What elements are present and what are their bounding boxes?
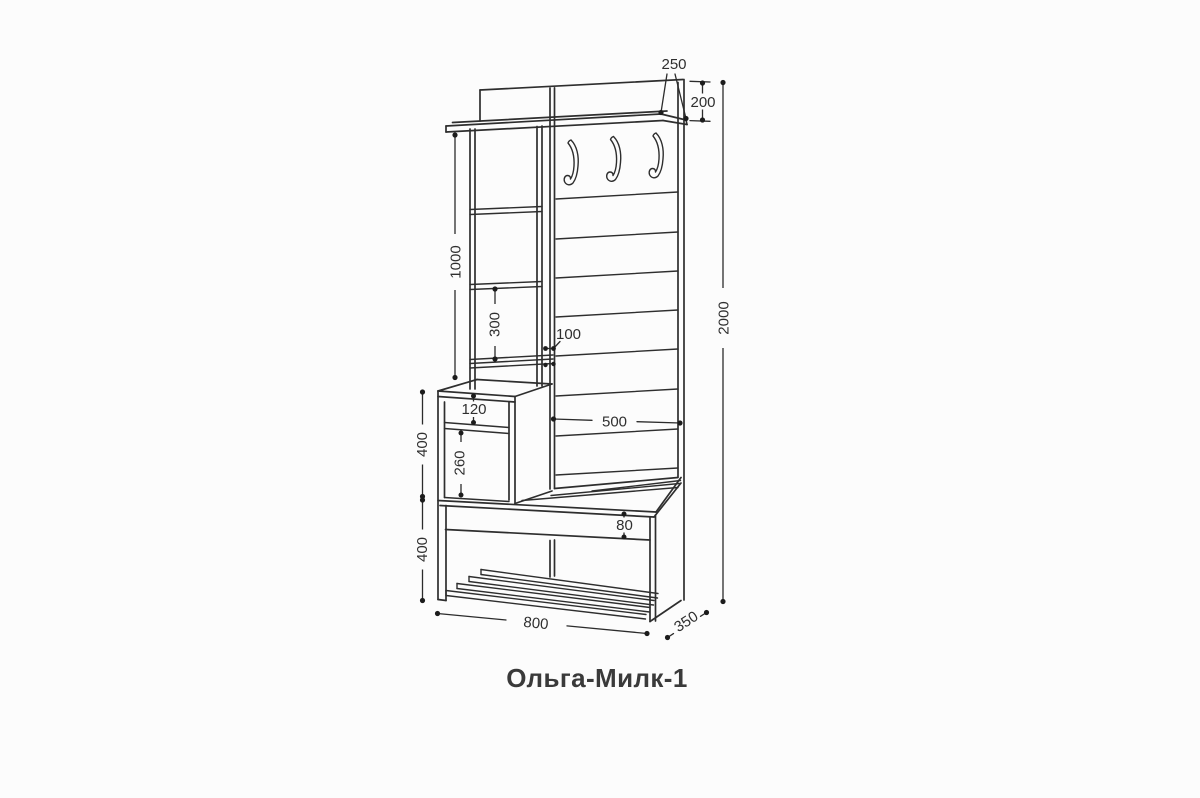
bench-seat — [438, 478, 681, 518]
dim-cabinet-section-height: 400 — [414, 389, 431, 499]
dim-niche-height-label: 120 — [461, 401, 486, 418]
back-panel — [480, 80, 684, 601]
dim-column-height: 1000 — [447, 132, 465, 380]
dim-bench-section-height: 400 — [414, 497, 431, 603]
coat-hooks — [564, 133, 663, 185]
furniture-blueprint-svg: 250 200 2000 — [0, 0, 1200, 798]
coat-hook-icon — [564, 140, 578, 185]
dim-top-panel-height-label: 200 — [690, 94, 715, 111]
dim-divider-depth: 100 — [543, 326, 581, 367]
dim-shelf-spacing: 300 — [487, 286, 504, 361]
dim-cabinet-opening: 260 — [452, 431, 470, 498]
dim-overall-height-label: 2000 — [716, 301, 733, 334]
top-shelf — [446, 111, 687, 132]
dim-divider-depth-label: 100 — [556, 326, 581, 343]
dim-overall-width-label: 800 — [523, 614, 550, 633]
dim-column-height-label: 1000 — [448, 245, 465, 278]
dim-panel-width-label: 500 — [602, 414, 627, 431]
blueprint-canvas: 250 200 2000 — [0, 0, 1200, 798]
dim-shelf-spacing-label: 300 — [487, 312, 504, 337]
product-title: Ольга-Милк-1 — [506, 663, 687, 693]
dim-seat-apron-label: 80 — [616, 517, 633, 534]
dim-overall-depth: 350 — [665, 608, 709, 640]
dim-bench-section-height-label: 400 — [414, 537, 431, 562]
dim-overall-height: 2000 — [714, 80, 733, 604]
coat-hook-icon — [649, 133, 663, 178]
dim-cabinet-section-height-label: 400 — [414, 432, 431, 457]
dim-cabinet-opening-label: 260 — [452, 450, 469, 475]
coat-hook-icon — [607, 137, 621, 182]
dim-overall-width: 800 — [435, 611, 650, 636]
dim-overall-depth-label: 350 — [671, 608, 701, 636]
shoe-rack — [446, 570, 658, 620]
dim-panel-width: 500 — [551, 414, 683, 431]
dim-shelf-depth-label: 250 — [661, 56, 686, 73]
shelf-column — [470, 126, 553, 389]
mid-cabinet — [438, 380, 552, 600]
drawing-structure — [438, 80, 687, 622]
dim-top-panel-height: 200 — [689, 80, 717, 122]
